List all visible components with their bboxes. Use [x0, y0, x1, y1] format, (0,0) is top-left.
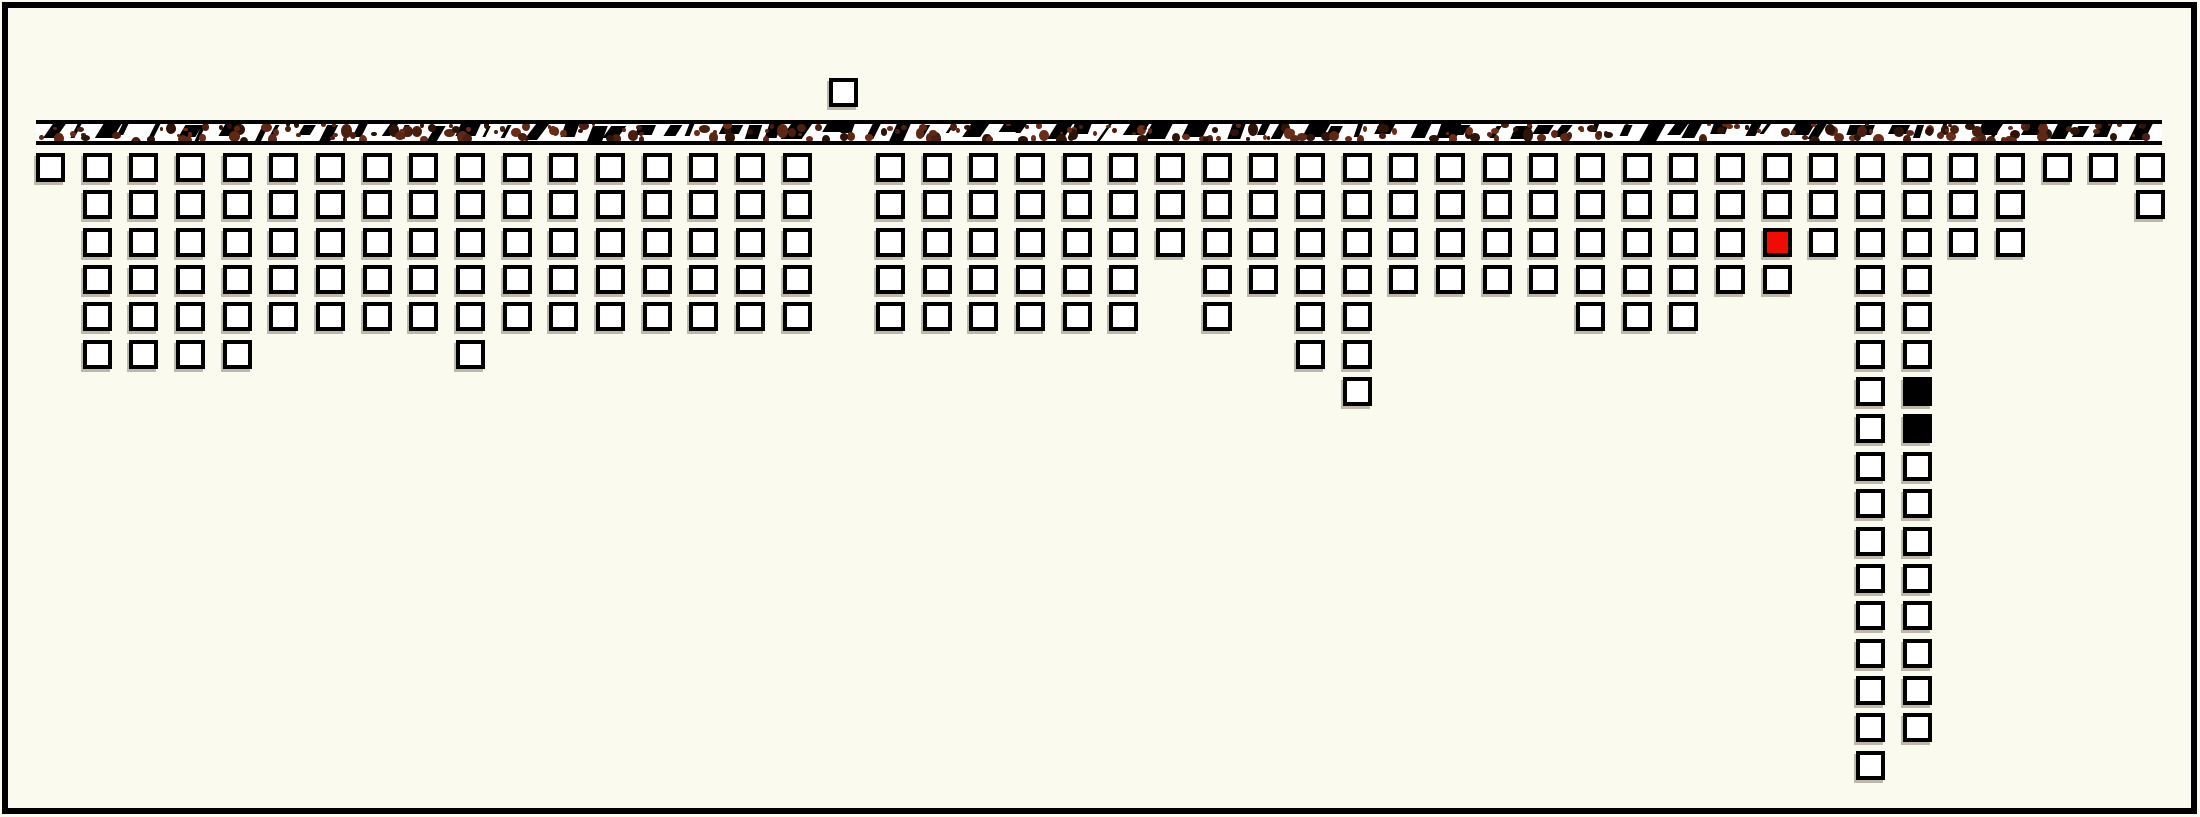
bar-ink-stain: [1926, 127, 1933, 136]
bar-ink-stain: [1466, 127, 1474, 135]
bar-ink-stain: [261, 123, 272, 132]
bar-ink-stain: [1137, 135, 1148, 145]
bar-ink-stain: [2001, 137, 2007, 143]
grid-square: [1483, 190, 1512, 219]
bar-ink-stain: [1781, 128, 1790, 137]
bar-ink-stain: [518, 133, 527, 141]
bar-ink-stain: [1567, 132, 1572, 139]
bar-ink-stain: [522, 122, 530, 131]
bar-ink-stain: [202, 123, 209, 130]
artwork-canvas: [0, 0, 2200, 817]
grid-square: [363, 302, 392, 331]
grid-square: [456, 302, 485, 331]
grid-square: [1856, 414, 1885, 443]
bar-ink-stain: [2095, 123, 2102, 130]
grid-square: [1249, 153, 1278, 182]
grid-square: [643, 153, 672, 182]
grid-square: [549, 153, 578, 182]
grid-square: [736, 265, 765, 294]
grid-square: [1016, 228, 1045, 257]
bar-ink-stain: [466, 127, 471, 132]
grid-square: [1203, 228, 1232, 257]
bar-ink-stain: [2110, 133, 2117, 141]
grid-square: [1249, 228, 1278, 257]
grid-square: [269, 153, 298, 182]
grid-square: [503, 153, 532, 182]
bar-ink-stain: [1527, 122, 1532, 128]
grid-square: [1856, 153, 1885, 182]
bar-ink-stain: [1036, 123, 1042, 129]
grid-square: [316, 302, 345, 331]
grid-square: [223, 153, 252, 182]
bar-ink-stain: [1537, 134, 1546, 142]
black-square: [1903, 377, 1932, 406]
grid-square: [1296, 228, 1325, 257]
grid-square: [783, 228, 812, 257]
grid-square: [969, 228, 998, 257]
bar-ink-stain: [1025, 125, 1029, 129]
grid-square: [596, 153, 625, 182]
bar-ink-stain: [1717, 127, 1725, 134]
grid-square: [689, 302, 718, 331]
grid-square: [736, 302, 765, 331]
grid-square: [363, 190, 392, 219]
grid-square: [1856, 713, 1885, 742]
bar-ink-stain: [1039, 130, 1050, 142]
grid-square: [783, 190, 812, 219]
grid-square: [689, 190, 718, 219]
grid-square: [1763, 153, 1792, 182]
grid-square: [1856, 377, 1885, 406]
grid-square: [1669, 190, 1698, 219]
grid-square: [456, 190, 485, 219]
grid-square: [1996, 153, 2025, 182]
grid-square: [1156, 228, 1185, 257]
bar-ink-stain: [285, 126, 291, 132]
grid-square: [1856, 489, 1885, 518]
bar-ink-stain: [1865, 123, 1869, 126]
bar-ink-stain: [147, 136, 156, 143]
grid-square: [923, 265, 952, 294]
grid-square: [129, 153, 158, 182]
bar-ink-stain: [1018, 136, 1028, 144]
grid-square: [1903, 564, 1932, 593]
grid-square: [1716, 153, 1745, 182]
grid-square: [83, 302, 112, 331]
grid-square: [1109, 228, 1138, 257]
grid-square: [783, 265, 812, 294]
grid-square: [1716, 190, 1745, 219]
grid-square: [1576, 265, 1605, 294]
grid-square: [1903, 676, 1932, 705]
bar-ink-stain: [343, 137, 348, 142]
grid-square: [409, 302, 438, 331]
grid-square: [643, 190, 672, 219]
bar-ink-stain: [1551, 130, 1558, 138]
bar-ink-stain: [1449, 134, 1458, 144]
grid-square: [129, 340, 158, 369]
bar-ink-stain: [1726, 124, 1733, 130]
bar-ink-stain: [1857, 126, 1866, 137]
grid-square: [1063, 190, 1092, 219]
bar-ink-stain: [185, 136, 192, 145]
bar-ink-stain: [166, 123, 176, 134]
bar-ink-stain: [881, 128, 887, 135]
grid-square: [923, 228, 952, 257]
grid-square: [1576, 190, 1605, 219]
bar-ink-stain: [1031, 135, 1036, 141]
grid-square: [1949, 153, 1978, 182]
grid-square: [456, 228, 485, 257]
grid-square: [1856, 228, 1885, 257]
bar-ink-stain: [420, 123, 424, 128]
grid-square: [456, 153, 485, 182]
bar-ink-stain: [723, 122, 732, 129]
grid-square: [1809, 228, 1838, 257]
grid-square: [1249, 265, 1278, 294]
grid-square: [1296, 302, 1325, 331]
bar-ink-stain: [622, 128, 625, 132]
grid-square: [1203, 302, 1232, 331]
grid-square: [1856, 340, 1885, 369]
grid-square: [1623, 302, 1652, 331]
grid-square: [176, 228, 205, 257]
grid-square: [223, 302, 252, 331]
grid-square: [503, 228, 532, 257]
bar-ink-stain: [1379, 133, 1386, 139]
grid-square: [83, 153, 112, 182]
bar-ink-stain: [1971, 137, 1978, 143]
grid-square: [1856, 564, 1885, 593]
grid-square: [1063, 228, 1092, 257]
bar-ink-stain: [578, 129, 583, 133]
bar-ink-stain: [2117, 123, 2122, 127]
grid-square: [689, 265, 718, 294]
grid-square: [1483, 153, 1512, 182]
grid-square: [269, 228, 298, 257]
bar-ink-stain: [699, 125, 710, 132]
bar-ink-stain: [1811, 123, 1816, 127]
bar-ink-stain: [636, 125, 642, 130]
bar-ink-stain: [1873, 134, 1884, 145]
bar-ink-stain: [428, 124, 436, 132]
bar-ink-stain: [395, 132, 405, 140]
bar-ink-stain: [1112, 128, 1116, 133]
grid-square: [1389, 190, 1418, 219]
bar-ink-stain: [606, 135, 614, 142]
grid-square: [2089, 153, 2118, 182]
grid-square: [876, 265, 905, 294]
grid-square: [129, 190, 158, 219]
bar-slash-mark: [1410, 124, 1431, 138]
grid-square: [1669, 302, 1698, 331]
bar-ink-stain: [1345, 136, 1352, 142]
bar-ink-stain: [1745, 125, 1749, 129]
bar-ink-stain: [797, 124, 806, 133]
bar-ink-stain: [822, 135, 830, 144]
grid-square: [1903, 190, 1932, 219]
grid-square: [83, 265, 112, 294]
grid-square: [83, 228, 112, 257]
bar-ink-stain: [359, 135, 367, 145]
bar-ink-stain: [2132, 134, 2135, 138]
grid-square: [176, 265, 205, 294]
bar-ink-stain: [1965, 123, 1974, 130]
grid-square: [876, 302, 905, 331]
grid-square: [1856, 452, 1885, 481]
grid-square: [1716, 228, 1745, 257]
grid-square: [36, 153, 65, 182]
bar-slash-mark: [1619, 125, 1632, 136]
bar-ink-stain: [183, 128, 188, 132]
grid-square: [1436, 190, 1465, 219]
bar-ink-stain: [1297, 133, 1307, 141]
bar-ink-stain: [865, 134, 874, 141]
grid-square: [2136, 153, 2165, 182]
grid-square: [1903, 340, 1932, 369]
grid-square: [223, 190, 252, 219]
grid-square: [1996, 228, 2025, 257]
grid-square: [176, 302, 205, 331]
bar-ink-stain: [341, 124, 352, 137]
grid-square: [969, 265, 998, 294]
black-square: [1903, 414, 1932, 443]
grid-square: [1903, 713, 1932, 742]
grid-square: [1903, 639, 1932, 668]
grid-square: [1716, 265, 1745, 294]
bar-slash-mark: [1257, 122, 1271, 135]
bar-ink-stain: [199, 134, 205, 142]
grid-square: [1483, 228, 1512, 257]
bar-ink-stain: [1523, 128, 1534, 142]
grid-square: [1063, 153, 1092, 182]
grid-square: [316, 228, 345, 257]
grid-square: [549, 302, 578, 331]
grid-square: [923, 153, 952, 182]
bar-ink-stain: [1363, 126, 1368, 132]
grid-square: [1296, 153, 1325, 182]
grid-square: [1669, 153, 1698, 182]
grid-square: [1203, 190, 1232, 219]
bar-ink-stain: [1148, 128, 1152, 133]
grid-square: [1436, 265, 1465, 294]
grid-square: [223, 228, 252, 257]
grid-square: [1809, 190, 1838, 219]
grid-square: [363, 153, 392, 182]
grid-square: [1623, 228, 1652, 257]
grid-square: [1669, 265, 1698, 294]
bar-ink-stain: [1580, 129, 1583, 132]
grid-square: [83, 340, 112, 369]
bar-ink-stain: [240, 137, 247, 145]
grid-square: [1623, 153, 1652, 182]
bar-ink-stain: [1143, 127, 1147, 130]
grid-square: [1903, 489, 1932, 518]
grid-square: [1343, 377, 1372, 406]
grid-square: [596, 228, 625, 257]
bar-ink-stain: [956, 128, 960, 133]
grid-square: [83, 190, 112, 219]
bar-ink-stain: [1067, 127, 1072, 133]
bar-ink-stain: [628, 130, 638, 140]
bar-ink-stain: [1950, 125, 1959, 134]
grid-square: [1343, 302, 1372, 331]
grid-square: [596, 190, 625, 219]
grid-square: [1576, 153, 1605, 182]
bar-ink-stain: [160, 127, 164, 131]
bar-ink-stain: [268, 134, 277, 144]
bar-ink-stain: [1056, 134, 1067, 145]
bar-ink-stain: [2093, 129, 2100, 134]
grid-square: [1623, 190, 1652, 219]
grid-square: [1156, 190, 1185, 219]
grid-square: [876, 228, 905, 257]
grid-square: [596, 302, 625, 331]
bar-ink-stain: [639, 136, 644, 143]
grid-square: [1996, 190, 2025, 219]
grid-square: [363, 265, 392, 294]
bar-slash-mark: [298, 125, 316, 135]
grid-square: [1389, 228, 1418, 257]
grid-square: [269, 265, 298, 294]
grid-square: [223, 340, 252, 369]
grid-square: [1343, 228, 1372, 257]
grid-square: [129, 302, 158, 331]
bar-ink-stain: [1903, 135, 1911, 144]
bar-ink-stain: [1707, 123, 1710, 126]
grid-square: [736, 153, 765, 182]
grid-square: [1343, 153, 1372, 182]
grid-square: [689, 228, 718, 257]
grid-square: [1856, 639, 1885, 668]
grid-square: [1763, 190, 1792, 219]
bar-ink-stain: [1267, 136, 1270, 140]
bar-ink-stain: [1429, 135, 1438, 142]
grid-square: [363, 228, 392, 257]
bar-ink-stain: [219, 125, 223, 130]
grid-square: [1903, 601, 1932, 630]
grid-square: [1109, 190, 1138, 219]
bar-ink-stain: [420, 136, 428, 144]
grid-square: [1856, 302, 1885, 331]
bar-ink-stain: [1392, 128, 1397, 135]
bar-ink-stain: [1491, 128, 1499, 134]
grid-square: [876, 190, 905, 219]
bar-ink-stain: [641, 132, 644, 135]
bar-slash-mark: [685, 124, 694, 136]
grid-square: [1296, 340, 1325, 369]
bar-slash-mark: [1639, 124, 1665, 141]
bar-ink-stain: [500, 126, 506, 131]
grid-square: [969, 302, 998, 331]
grid-square: [1856, 751, 1885, 780]
grid-square: [503, 265, 532, 294]
grid-square: [1529, 265, 1558, 294]
bar-ink-stain: [1470, 133, 1479, 142]
grid-square: [923, 190, 952, 219]
grid-square: [1856, 190, 1885, 219]
bar-ink-stain: [2108, 122, 2112, 125]
bar-ink-stain: [1945, 129, 1948, 132]
grid-square: [1436, 228, 1465, 257]
grid-square: [1063, 265, 1092, 294]
grid-square: [409, 153, 438, 182]
grid-square: [783, 302, 812, 331]
grid-square: [549, 190, 578, 219]
grid-square: [129, 228, 158, 257]
bar-ink-stain: [815, 124, 821, 131]
grid-square: [223, 265, 252, 294]
grid-square: [1343, 190, 1372, 219]
grid-square: [1016, 265, 1045, 294]
grid-square: [923, 302, 952, 331]
bar-ink-stain: [296, 133, 300, 137]
grid-square: [176, 340, 205, 369]
bar-ink-stain: [2006, 137, 2016, 145]
grid-square: [1763, 265, 1792, 294]
bar-ink-stain: [1079, 125, 1083, 129]
grid-square: [1903, 228, 1932, 257]
grid-square: [596, 265, 625, 294]
bar-ink-stain: [1809, 136, 1820, 145]
grid-square: [736, 228, 765, 257]
bar-ink-stain: [1182, 134, 1190, 141]
grid-square: [409, 190, 438, 219]
bar-ink-stain: [1246, 137, 1251, 141]
grid-square: [1809, 153, 1838, 182]
bar-slash-mark: [1913, 125, 1924, 138]
grid-square: [1856, 265, 1885, 294]
bar-ink-stain: [131, 137, 141, 145]
grid-square: [1016, 302, 1045, 331]
grid-square: [643, 265, 672, 294]
bar-ink-stain: [1006, 123, 1010, 127]
bar-ink-stain: [1802, 135, 1808, 140]
grid-square: [1016, 190, 1045, 219]
grid-square: [1949, 228, 1978, 257]
grid-square: [1903, 302, 1932, 331]
bar-ink-stain: [1329, 131, 1339, 141]
bar-ink-stain: [840, 133, 848, 141]
bar-ink-stain: [887, 126, 893, 131]
grid-square: [1576, 302, 1605, 331]
grid-square: [176, 153, 205, 182]
bar-ink-stain: [806, 136, 813, 142]
grid-square: [1529, 190, 1558, 219]
grid-square: [2043, 153, 2072, 182]
grid-square: [1903, 452, 1932, 481]
grid-square: [129, 265, 158, 294]
grid-square: [316, 265, 345, 294]
grid-square: [876, 153, 905, 182]
bar-ink-stain: [77, 127, 85, 133]
grid-square: [1623, 265, 1652, 294]
bar-ink-stain: [1068, 134, 1074, 141]
bar-ink-stain: [371, 132, 377, 137]
bar-slash-mark: [664, 125, 683, 136]
bar-ink-stain: [54, 133, 64, 144]
grid-square: [1856, 527, 1885, 556]
grid-square: [316, 153, 345, 182]
bar-ink-stain: [1494, 135, 1500, 142]
bar-ink-stain: [1263, 135, 1267, 140]
grid-square: [1903, 527, 1932, 556]
grid-square: [1016, 153, 1045, 182]
bar-ink-stain: [463, 134, 472, 143]
bar-ink-stain: [112, 132, 121, 139]
bar-ink-stain: [2142, 133, 2150, 140]
bar-ink-stain: [333, 133, 338, 137]
